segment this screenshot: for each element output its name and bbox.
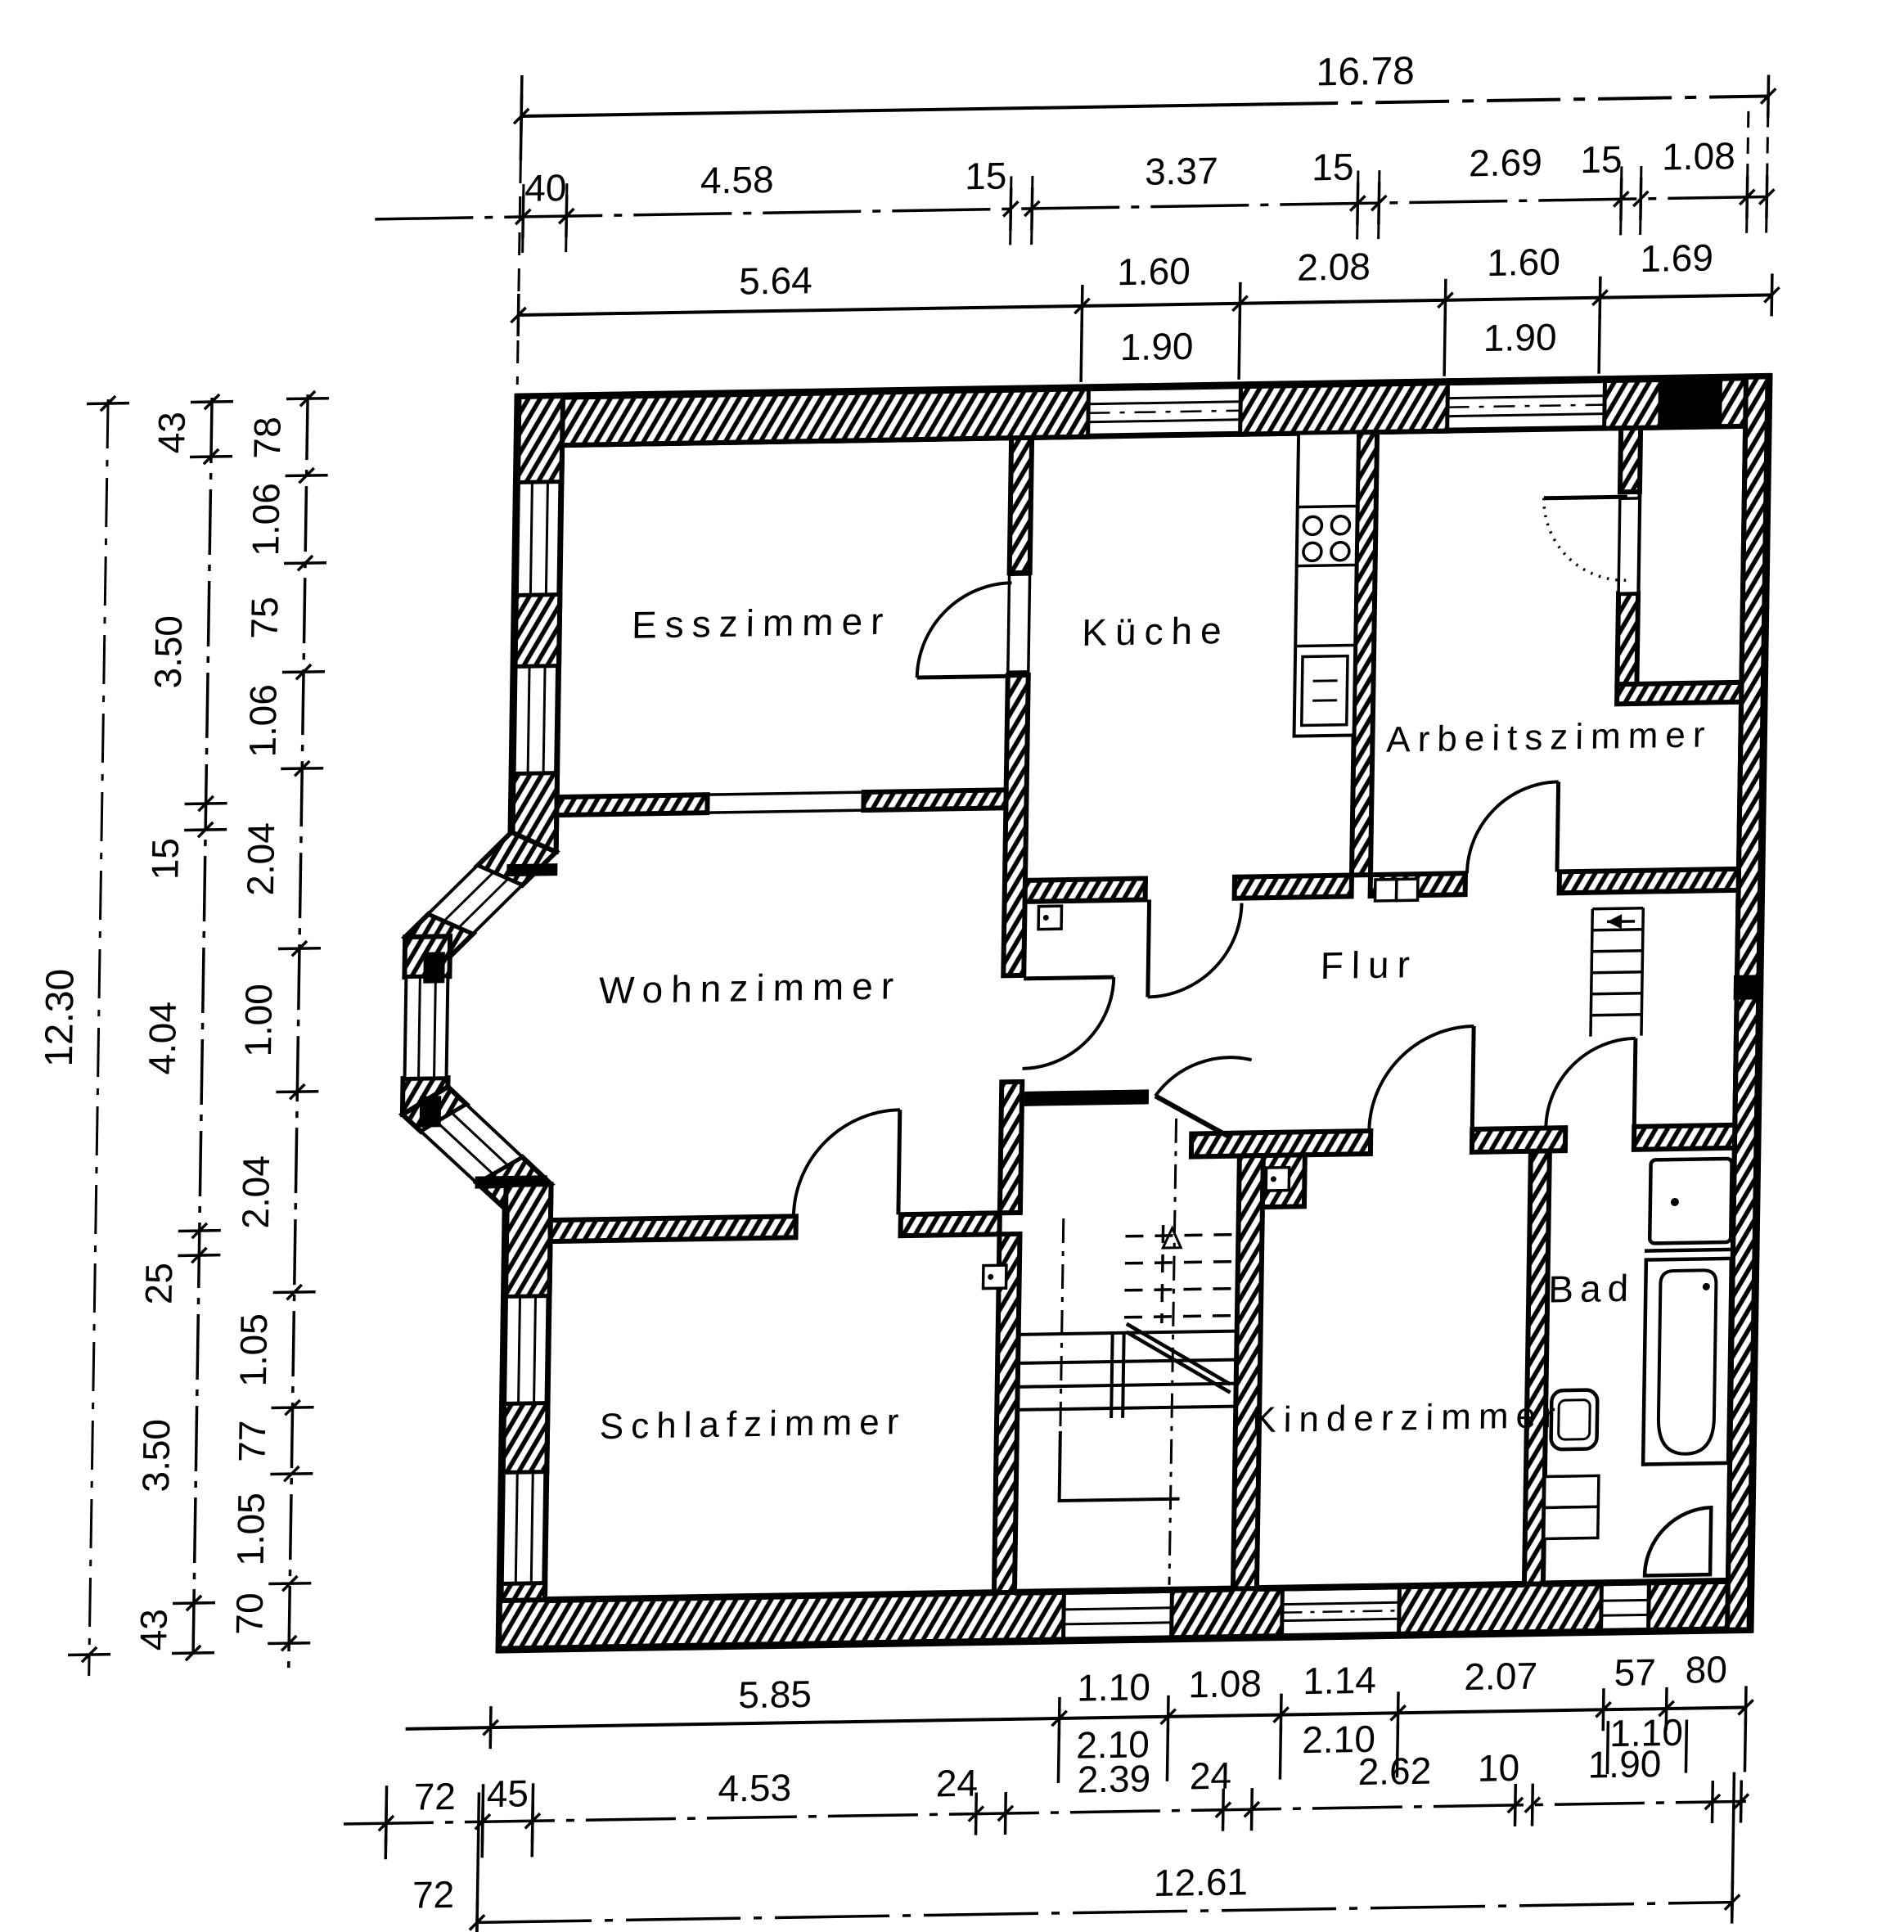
svg-text:43: 43 — [150, 412, 193, 454]
svg-text:1.05: 1.05 — [229, 1493, 272, 1566]
svg-text:10: 10 — [1478, 1746, 1520, 1790]
svg-text:4.04: 4.04 — [141, 1002, 184, 1075]
svg-text:5.64: 5.64 — [739, 259, 812, 302]
svg-text:1.05: 1.05 — [232, 1313, 275, 1387]
svg-text:Arbeitszimmer: Arbeitszimmer — [1386, 714, 1713, 759]
svg-text:Schlafzimmer: Schlafzimmer — [599, 1402, 906, 1447]
svg-text:1.08: 1.08 — [1662, 134, 1735, 178]
svg-text:78: 78 — [245, 417, 289, 459]
svg-text:2.07: 2.07 — [1464, 1655, 1537, 1698]
svg-text:4.53: 4.53 — [718, 1766, 791, 1809]
svg-text:15: 15 — [1312, 146, 1354, 189]
svg-text:12.30: 12.30 — [38, 968, 83, 1067]
svg-text:72: 72 — [412, 1873, 455, 1916]
svg-text:45: 45 — [486, 1772, 529, 1815]
svg-text:Wohnzimmer: Wohnzimmer — [599, 964, 902, 1011]
svg-text:1.08: 1.08 — [1188, 1662, 1262, 1705]
svg-text:Flur: Flur — [1320, 943, 1418, 987]
svg-text:15: 15 — [1580, 137, 1623, 181]
svg-text:2.08: 2.08 — [1297, 245, 1371, 288]
svg-text:25: 25 — [137, 1263, 180, 1305]
svg-text:1.90: 1.90 — [1587, 1742, 1661, 1786]
svg-text:1.90: 1.90 — [1483, 316, 1557, 359]
svg-text:Kinderzimmer: Kinderzimmer — [1252, 1395, 1563, 1440]
svg-text:72: 72 — [413, 1775, 456, 1818]
svg-text:Küche: Küche — [1082, 609, 1230, 654]
svg-text:70: 70 — [227, 1592, 271, 1635]
svg-text:24: 24 — [1190, 1754, 1232, 1798]
svg-text:Esszimmer: Esszimmer — [632, 600, 892, 646]
svg-text:1.14: 1.14 — [1303, 1659, 1376, 1702]
svg-text:80: 80 — [1685, 1648, 1727, 1691]
svg-text:77: 77 — [231, 1420, 274, 1462]
svg-text:2.39: 2.39 — [1077, 1757, 1150, 1800]
svg-text:75: 75 — [243, 597, 286, 639]
svg-text:1.06: 1.06 — [241, 684, 284, 758]
svg-text:2.62: 2.62 — [1357, 1750, 1431, 1793]
svg-text:15: 15 — [965, 154, 1007, 197]
svg-text:4.58: 4.58 — [700, 158, 774, 201]
svg-text:5.85: 5.85 — [738, 1673, 812, 1716]
svg-text:1.69: 1.69 — [1640, 236, 1713, 280]
svg-text:1.10: 1.10 — [1077, 1665, 1150, 1709]
svg-text:57: 57 — [1614, 1651, 1656, 1694]
svg-text:1.60: 1.60 — [1117, 250, 1191, 293]
svg-text:2.04: 2.04 — [239, 822, 282, 896]
svg-text:1.90: 1.90 — [1120, 325, 1194, 368]
svg-text:43: 43 — [132, 1609, 175, 1651]
svg-text:1.60: 1.60 — [1487, 241, 1560, 284]
svg-text:2.69: 2.69 — [1469, 141, 1542, 184]
svg-text:16.78: 16.78 — [1316, 49, 1415, 94]
svg-text:3.50: 3.50 — [134, 1419, 178, 1493]
svg-text:15: 15 — [143, 838, 187, 880]
svg-text:1.00: 1.00 — [236, 984, 280, 1057]
svg-text:12.61: 12.61 — [1154, 1860, 1249, 1904]
svg-text:3.37: 3.37 — [1145, 149, 1218, 192]
svg-text:24: 24 — [935, 1762, 978, 1805]
svg-text:1.06: 1.06 — [244, 483, 287, 556]
svg-text:40: 40 — [524, 166, 567, 209]
svg-text:Bad: Bad — [1548, 1267, 1636, 1311]
svg-text:3.50: 3.50 — [146, 615, 190, 689]
svg-text:2.04: 2.04 — [234, 1155, 277, 1229]
